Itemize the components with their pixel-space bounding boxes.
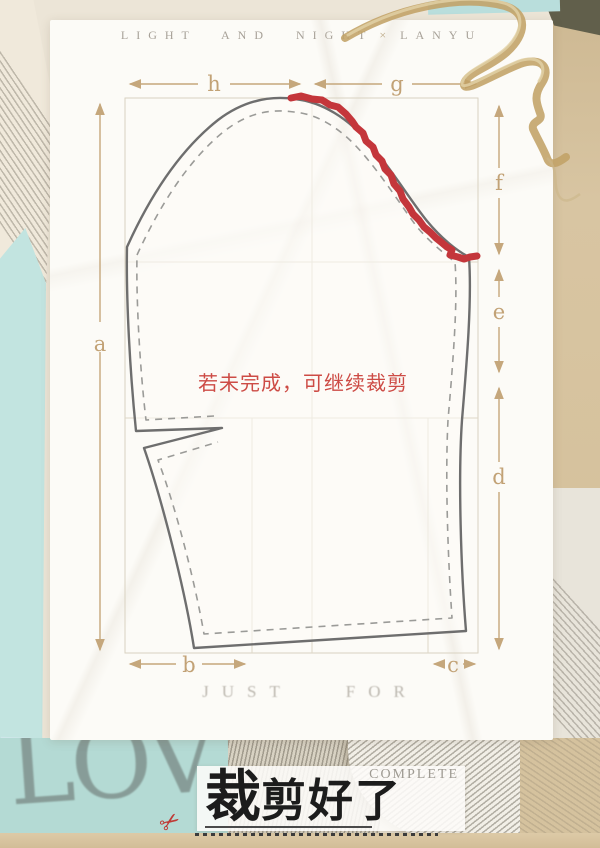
dim-label-e: e [493, 300, 505, 324]
dim-label-g: g [390, 72, 403, 96]
cutting-done-char: 裁 [205, 764, 261, 830]
dim-label-b: b [182, 653, 195, 677]
dim-label-h: h [207, 72, 221, 96]
dim-label-d: d [492, 465, 505, 489]
dim-label-c: c [447, 653, 459, 677]
dim-label-f: f [495, 171, 505, 195]
cutting-done-rest: 剪好了 [261, 774, 402, 827]
dim-label-a: a [94, 332, 107, 356]
game-screen: { "header": { "collab_left": "LIGHT AND … [0, 0, 600, 848]
pattern-canvas[interactable]: a h g f e d b c 若未完成，可继续裁剪 [0, 0, 600, 848]
banner-underline [205, 826, 372, 828]
complete-banner: COMPLETE 裁剪好了 [197, 766, 465, 831]
cutting-done-title: 裁剪好了 [205, 769, 402, 825]
banner-dotted-line [195, 833, 438, 836]
continue-cutting-hint: 若未完成，可继续裁剪 [198, 371, 408, 395]
